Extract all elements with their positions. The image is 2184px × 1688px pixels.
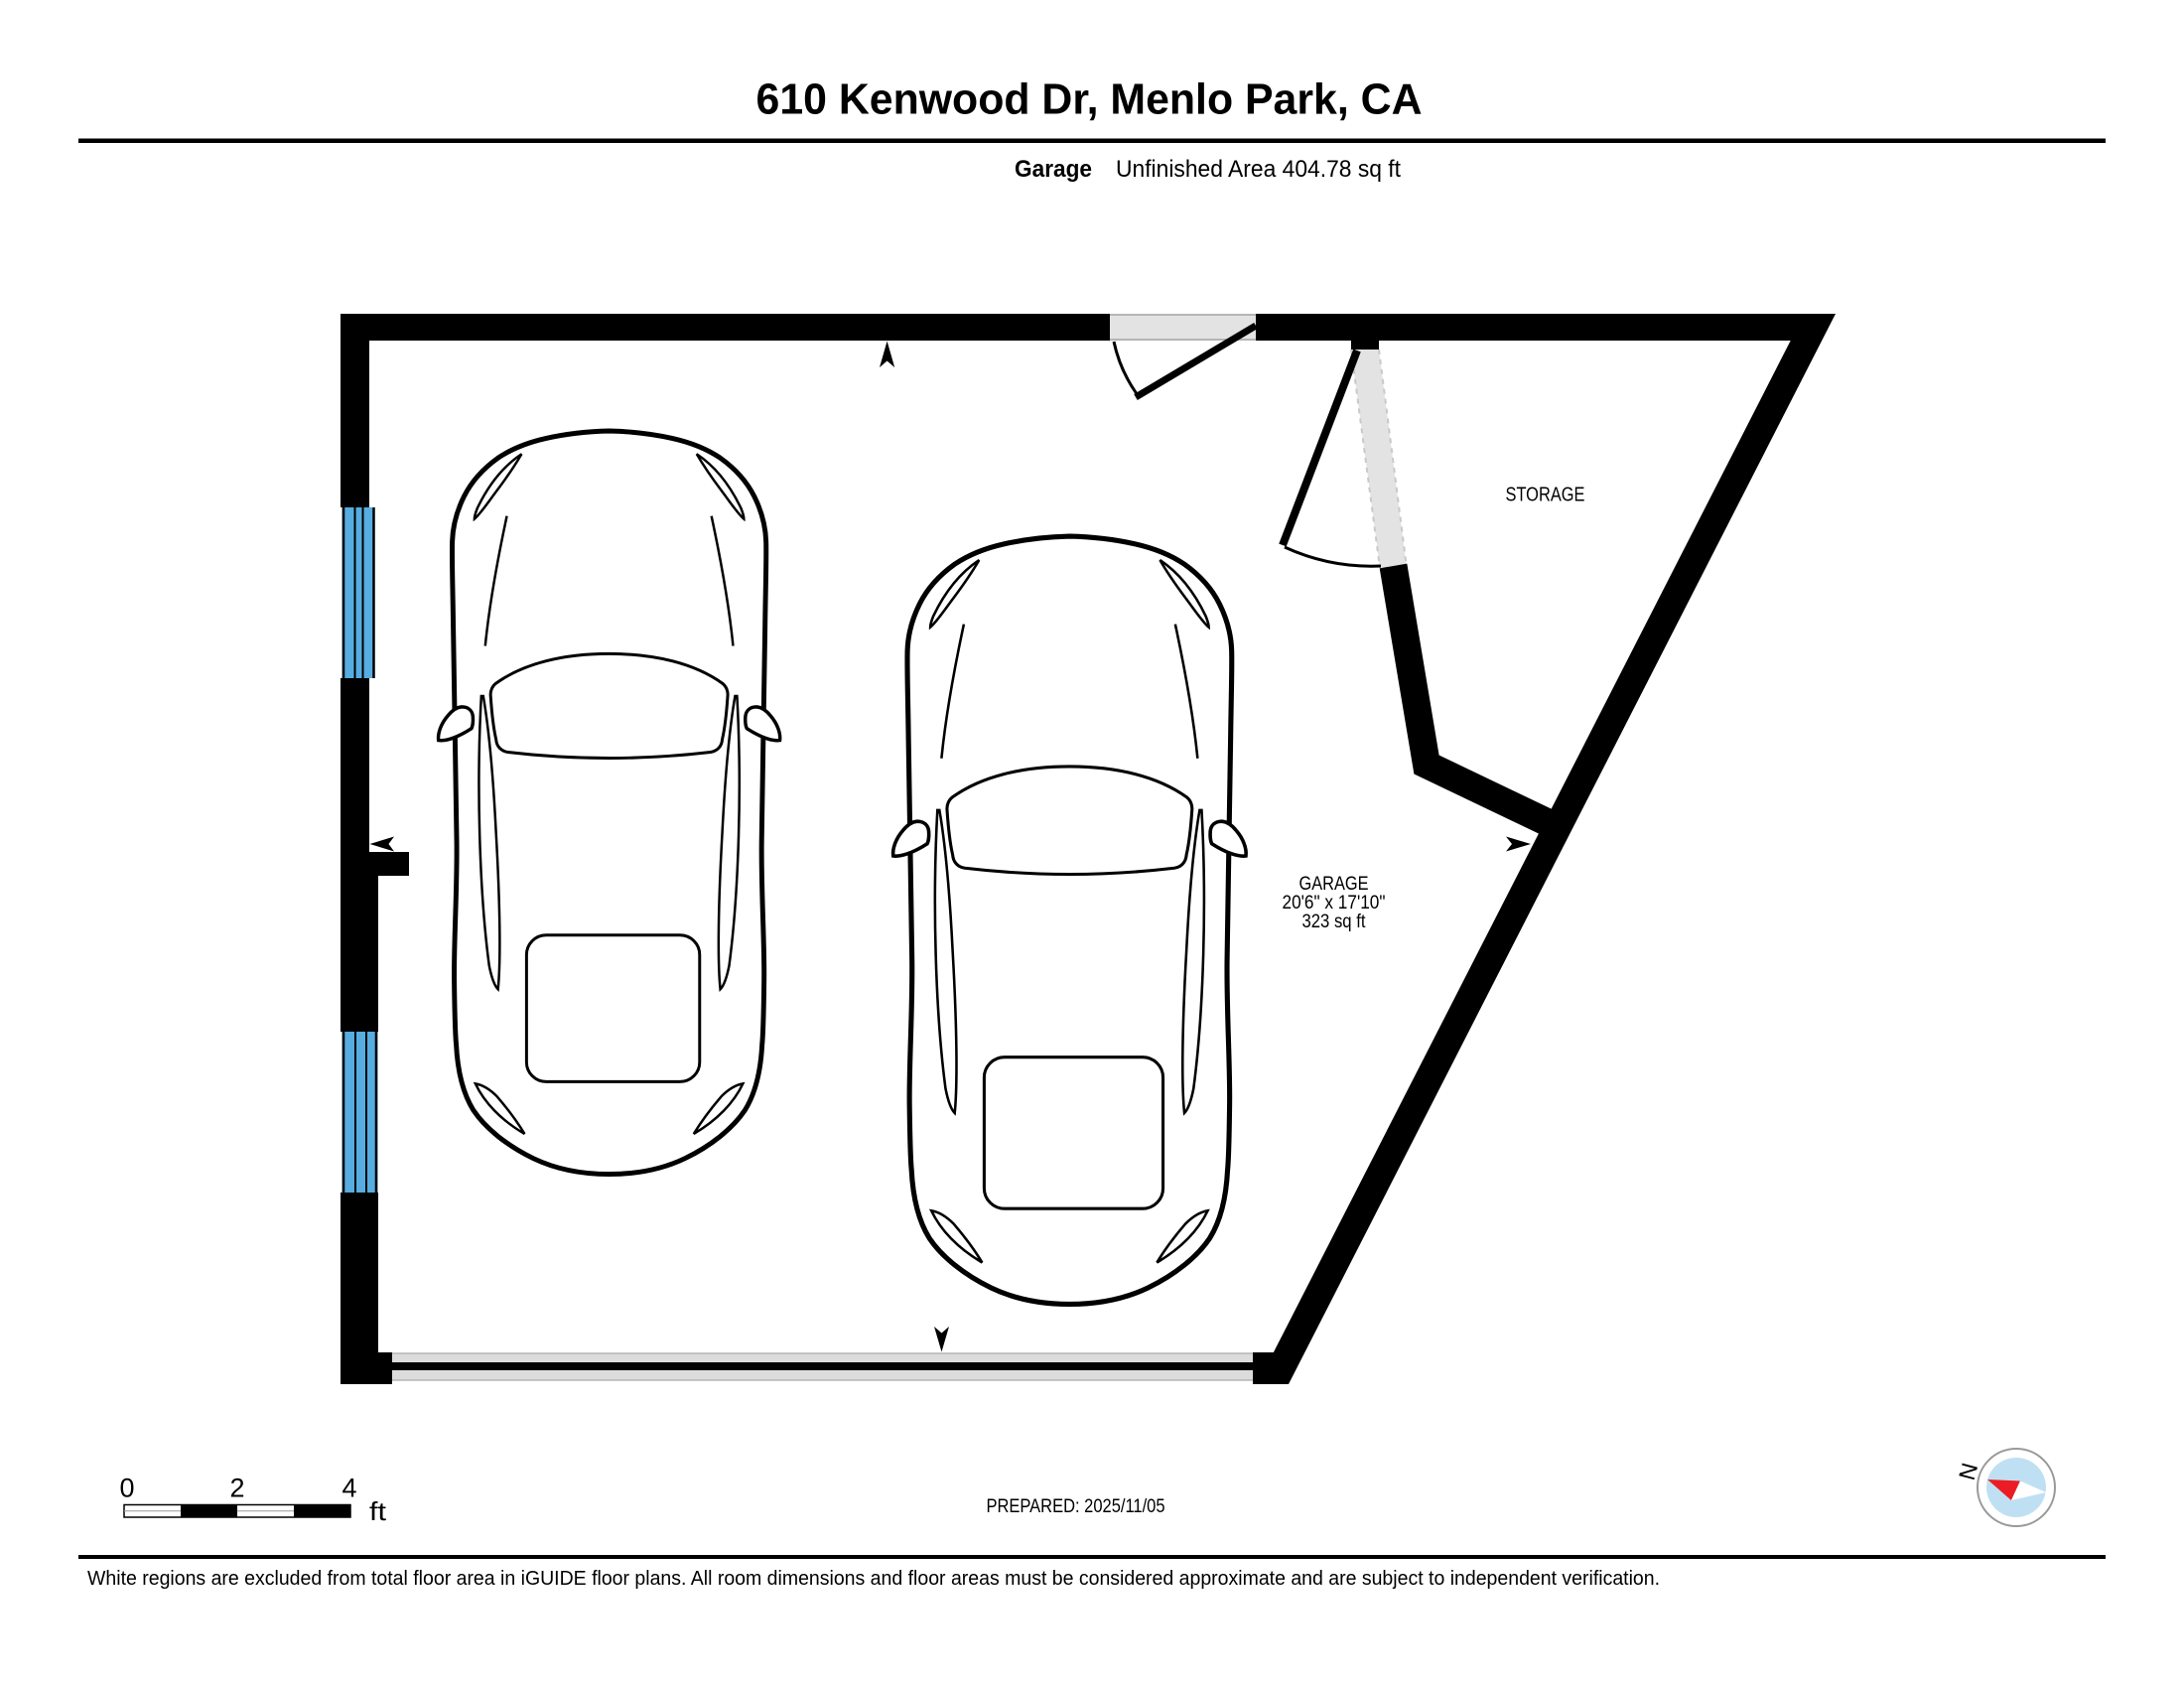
svg-text:610 Kenwood Dr, Menlo Park, CA: 610 Kenwood Dr, Menlo Park, CA	[756, 76, 1423, 124]
svg-text:ft: ft	[369, 1496, 387, 1526]
svg-text:323 sq ft: 323 sq ft	[1302, 912, 1367, 932]
svg-text:4: 4	[341, 1474, 356, 1503]
svg-text:STORAGE: STORAGE	[1506, 485, 1585, 506]
svg-text:PREPARED: 2025/11/05: PREPARED: 2025/11/05	[987, 1496, 1165, 1517]
svg-text:White regions are excluded fro: White regions are excluded from total fl…	[87, 1567, 1660, 1590]
svg-text:2: 2	[229, 1474, 244, 1503]
svg-text:0: 0	[119, 1474, 134, 1503]
svg-text:Garage: Garage	[1015, 156, 1092, 183]
svg-text:20'6" x 17'10": 20'6" x 17'10"	[1283, 893, 1386, 914]
svg-text:Unfinished Area 404.78 sq ft: Unfinished Area 404.78 sq ft	[1116, 156, 1401, 183]
svg-text:GARAGE: GARAGE	[1299, 874, 1369, 895]
